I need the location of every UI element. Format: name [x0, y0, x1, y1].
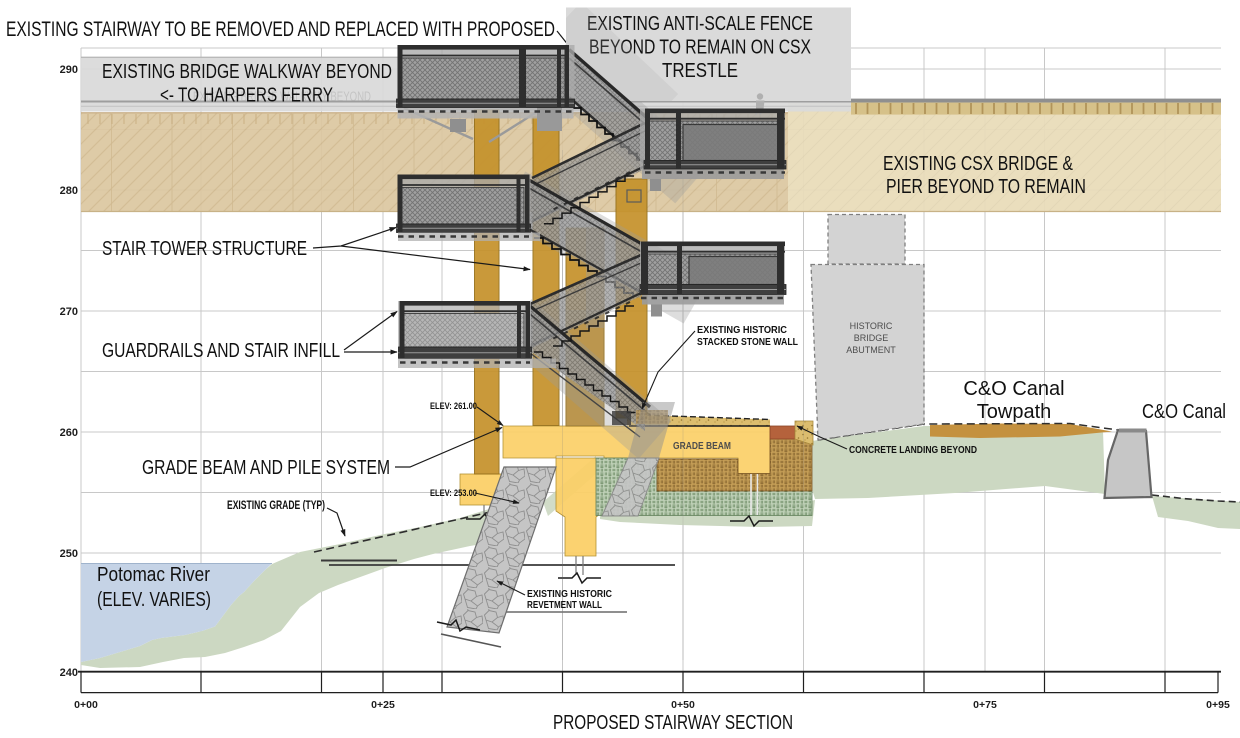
svg-text:0+50: 0+50: [671, 699, 695, 711]
svg-text:GRADE BEAM AND PILE SYSTEM: GRADE BEAM AND PILE SYSTEM: [142, 457, 390, 479]
svg-text:GUARDRAILS AND STAIR INFILL: GUARDRAILS AND STAIR INFILL: [102, 340, 340, 362]
svg-text:BRIDGE: BRIDGE: [854, 333, 889, 343]
svg-text:260: 260: [60, 427, 78, 439]
svg-text:290: 290: [60, 64, 78, 76]
svg-text:0+75: 0+75: [973, 699, 997, 711]
svg-text:CONCRETE LANDING BEYOND: CONCRETE LANDING BEYOND: [849, 444, 977, 456]
svg-text:REVETMENT WALL: REVETMENT WALL: [527, 599, 602, 611]
svg-text:EXISTING STAIRWAY TO BE REMOVE: EXISTING STAIRWAY TO BE REMOVED AND REPL…: [6, 18, 555, 41]
svg-text:ELEV: 261.00: ELEV: 261.00: [430, 401, 477, 412]
svg-text:GRADE BEAM: GRADE BEAM: [673, 440, 731, 452]
svg-text:HISTORIC: HISTORIC: [850, 321, 893, 331]
svg-text:TRESTLE: TRESTLE: [662, 60, 738, 82]
svg-text:PROPOSED STAIRWAY SECTION: PROPOSED STAIRWAY SECTION: [553, 712, 793, 734]
svg-text:ELEV: 253.00: ELEV: 253.00: [430, 488, 477, 499]
svg-text:0+25: 0+25: [371, 699, 395, 711]
svg-text:250: 250: [60, 548, 78, 560]
svg-text:ABUTMENT: ABUTMENT: [846, 345, 896, 355]
svg-text:PIER BEYOND TO REMAIN: PIER BEYOND TO REMAIN: [886, 176, 1086, 198]
svg-text:280: 280: [60, 185, 78, 197]
svg-text:EXISTING ANTI-SCALE FENCE: EXISTING ANTI-SCALE FENCE: [587, 13, 813, 35]
svg-text:EXISTING CSX BRIDGE &: EXISTING CSX BRIDGE &: [883, 153, 1074, 175]
svg-text:EXISTING HISTORIC: EXISTING HISTORIC: [697, 324, 787, 336]
svg-text:Towpath: Towpath: [977, 401, 1052, 423]
svg-text:(ELEV. VARIES): (ELEV. VARIES): [97, 588, 211, 611]
svg-text:EXISTING BRIDGE WALKWAY BEYOND: EXISTING BRIDGE WALKWAY BEYOND: [102, 61, 392, 83]
svg-text:C&O Canal: C&O Canal: [963, 378, 1064, 400]
svg-text:0+95: 0+95: [1206, 699, 1230, 711]
svg-text:270: 270: [60, 306, 78, 318]
svg-text:Potomac River: Potomac River: [97, 563, 210, 586]
svg-text:EXISTING GRADE (TYP): EXISTING GRADE (TYP): [227, 500, 325, 512]
svg-text:0+00: 0+00: [74, 699, 98, 711]
svg-text:240: 240: [60, 667, 78, 679]
svg-text:STAIR TOWER STRUCTURE: STAIR TOWER STRUCTURE: [102, 238, 307, 260]
svg-text:C&O Canal: C&O Canal: [1142, 401, 1226, 423]
svg-text:STACKED STONE WALL: STACKED STONE WALL: [697, 336, 798, 348]
svg-text:<- TO HARPERS FERRY: <- TO HARPERS FERRY: [160, 85, 333, 107]
